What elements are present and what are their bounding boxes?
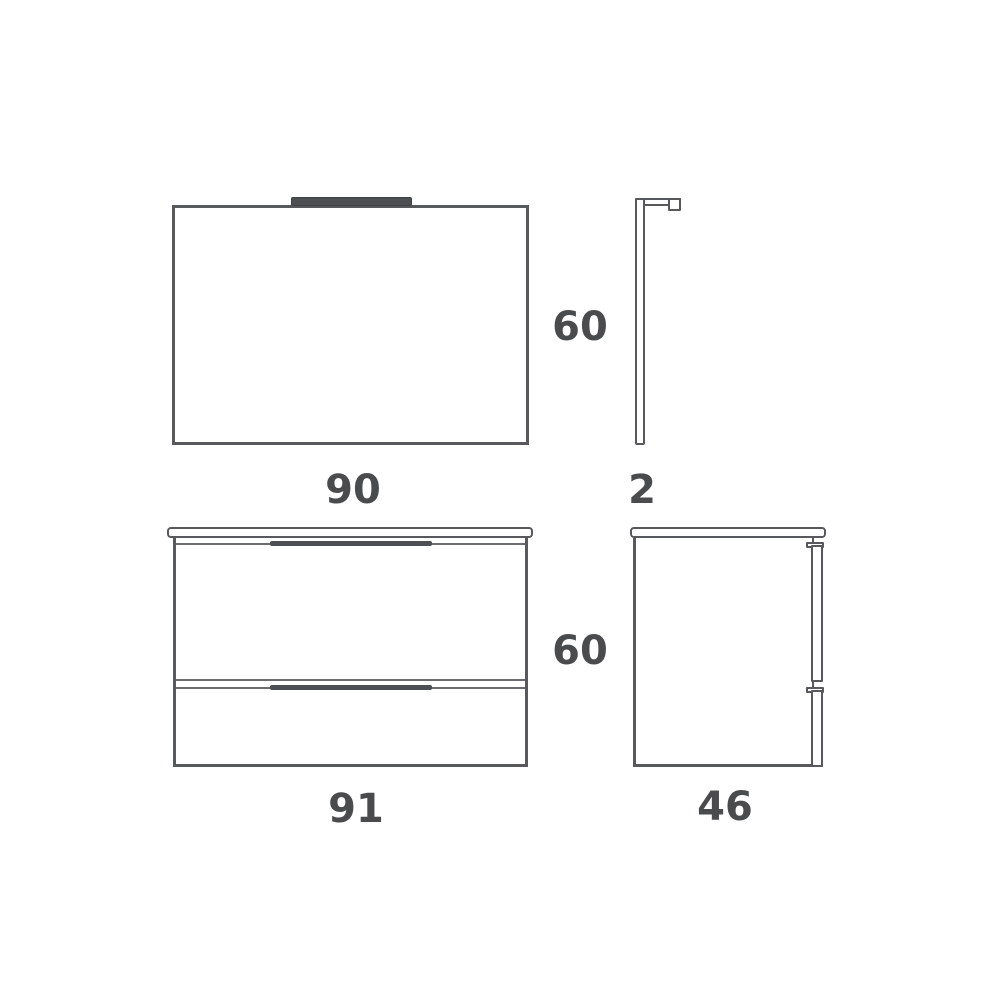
bottom-drawer-handle-groove: [270, 685, 432, 690]
mirror-side-light-head: [668, 198, 681, 211]
mirror-light-bar: [291, 197, 412, 206]
dimension-vanity-width: 91: [328, 789, 384, 829]
dimension-mirror-width: 90: [325, 470, 381, 510]
vanity-countertop-side: [630, 527, 826, 538]
side-bottom-drawer-front-edge: [811, 690, 823, 767]
vanity-body-front: [173, 538, 528, 767]
dimension-mirror-height: 60: [552, 307, 608, 347]
side-top-drawer-front-edge: [811, 545, 823, 682]
vanity-body-side: [633, 538, 814, 767]
drawer-divider-upper-line: [176, 679, 525, 681]
dimension-mirror-depth: 2: [628, 470, 656, 510]
top-drawer-handle-groove: [270, 541, 432, 546]
product-dimension-diagram: 90 60 2 91 60 46: [0, 0, 1000, 1000]
dimension-vanity-depth: 46: [697, 787, 753, 827]
mirror-side-panel: [635, 198, 645, 445]
dimension-vanity-height: 60: [552, 631, 608, 671]
vanity-countertop-front: [167, 527, 533, 538]
mirror-front-outline: [172, 205, 529, 445]
